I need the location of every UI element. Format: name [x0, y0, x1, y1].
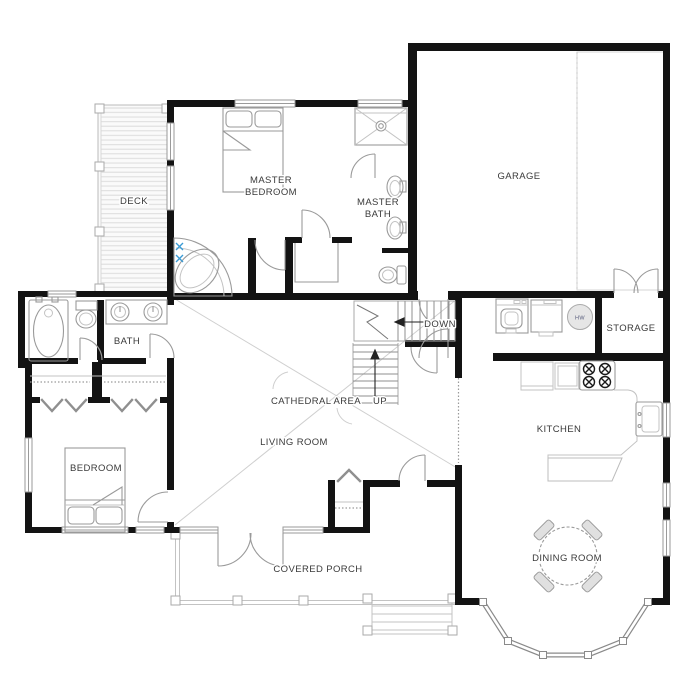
master-bath-label-line2: BATH	[365, 209, 391, 220]
dining-chair	[533, 519, 555, 541]
kitchen-label: KITCHEN	[537, 424, 582, 435]
window	[167, 166, 174, 210]
master-bedroom-label-line1: MASTER	[250, 175, 292, 186]
master-bath-label-line1: MASTER	[357, 197, 399, 208]
down-label: DOWN	[424, 319, 456, 330]
window	[136, 527, 164, 533]
dining-chair	[581, 519, 603, 541]
floor-plan-canvas: HW DECK MASTER	[0, 0, 700, 700]
stair-closet-door	[411, 347, 437, 373]
bedroom-bed	[65, 448, 125, 532]
dining-chair	[533, 571, 555, 593]
garage-parking-pad	[577, 52, 668, 290]
water-heater: HW	[568, 305, 593, 330]
master-shower	[355, 108, 407, 145]
bath-toilet	[76, 301, 97, 328]
window	[663, 403, 670, 437]
porch-steps	[372, 598, 452, 634]
living-room-se-door	[399, 455, 425, 481]
master-sink	[387, 217, 406, 239]
living-room-label: LIVING ROOM	[260, 437, 328, 448]
master-hall-door	[255, 240, 285, 270]
stove	[579, 361, 615, 390]
storage-label: STORAGE	[606, 323, 655, 334]
window	[48, 291, 76, 297]
bath-label: BATH	[114, 336, 140, 347]
window	[167, 123, 174, 160]
master-bath-door	[351, 154, 375, 178]
window	[25, 438, 32, 492]
cathedral-ceiling-lines	[175, 299, 457, 525]
window	[235, 100, 295, 107]
up-label: UP	[373, 396, 387, 407]
master-bedroom-label-line2: BEDROOM	[245, 187, 297, 198]
master-sink	[387, 176, 406, 198]
deck-label: DECK	[120, 196, 148, 207]
master-corner-tub	[167, 238, 232, 301]
bath-tub	[29, 297, 68, 361]
washer	[496, 299, 528, 333]
tub-faucets	[176, 243, 183, 262]
bath-vanity	[106, 300, 167, 324]
master-bedroom-door	[302, 210, 330, 238]
garage-label: GARAGE	[497, 171, 540, 182]
window	[358, 100, 402, 107]
bedroom-label: BEDROOM	[70, 463, 122, 474]
dining-room-label: DINING ROOM	[532, 553, 602, 564]
bath-vanity-door	[150, 334, 174, 358]
window	[180, 527, 218, 533]
window	[283, 527, 323, 533]
bay-window	[480, 599, 652, 659]
dryer	[531, 300, 562, 336]
floor-plan-drawing: HW DECK MASTER	[0, 0, 700, 700]
covered-porch-label: COVERED PORCH	[273, 564, 362, 575]
dining-chair	[581, 571, 603, 593]
porch-french-doors	[218, 533, 283, 566]
water-heater-label: HW	[575, 316, 585, 322]
storage-double-doors	[614, 269, 658, 293]
cathedral-area-label: CATHEDRAL AREA	[271, 396, 361, 407]
covered-porch	[171, 530, 458, 635]
porch-posts	[171, 530, 457, 635]
window	[663, 520, 670, 556]
master-toilet	[379, 266, 406, 284]
bedroom-door	[138, 492, 168, 522]
kitchen-sink	[636, 402, 662, 436]
window	[663, 483, 670, 507]
